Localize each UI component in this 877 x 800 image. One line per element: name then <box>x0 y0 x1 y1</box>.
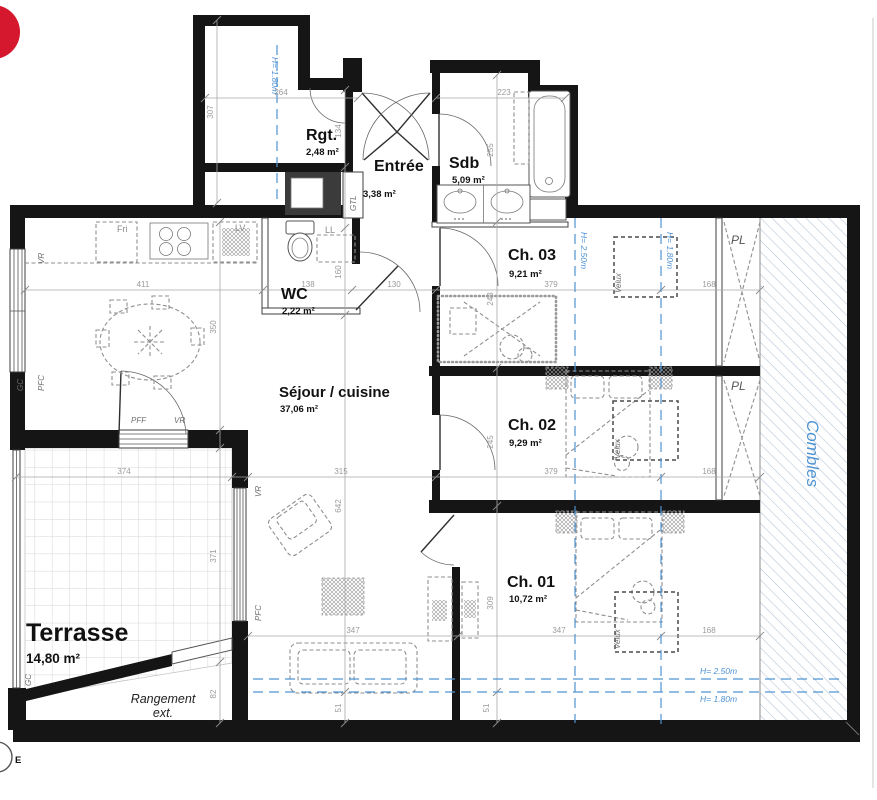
nightstand <box>546 367 568 389</box>
dim-243: 243 <box>486 292 495 306</box>
kitchen-counter <box>25 222 258 263</box>
dim-411: 411 <box>137 280 150 289</box>
gc-label-2: GC <box>24 674 33 686</box>
room-area-ch03: 9,21 m² <box>509 269 542 280</box>
dim-379-ch03: 379 <box>544 280 558 289</box>
dim-371: 371 <box>209 549 218 563</box>
door-ch01 <box>421 515 454 565</box>
pl-closet-braces <box>724 222 760 496</box>
dim-379-ch02: 379 <box>544 467 558 476</box>
sofa <box>290 643 417 693</box>
room-label-ch01: Ch. 01 <box>507 574 555 591</box>
double-sink <box>437 185 530 223</box>
room-label-entree: Entrée <box>374 158 424 175</box>
window-kitchen-left <box>10 249 25 372</box>
dim-168-ch02: 168 <box>702 467 716 476</box>
dim-130: 130 <box>387 280 401 289</box>
dim-138: 138 <box>301 280 315 289</box>
rangement-label-2: ext. <box>153 706 173 720</box>
room-label-rgt: Rgt. <box>306 127 337 144</box>
dim-309: 309 <box>486 596 495 610</box>
nightstand <box>663 511 684 533</box>
velux-label-ch02: Velux <box>613 438 622 459</box>
red-corner-badge <box>0 5 20 59</box>
room-area-sejour: 37,06 m² <box>280 404 318 415</box>
height-label-h250: H= 2.50m <box>700 666 737 676</box>
window-sejour-terrace <box>234 488 246 621</box>
room-label-sdb: Sdb <box>449 155 479 172</box>
pff-label: PFF <box>131 416 147 425</box>
dim-350: 350 <box>209 320 218 334</box>
door-ch03 <box>440 228 498 286</box>
velux-label-ch03: Velux <box>614 272 623 293</box>
nightstand <box>556 511 577 533</box>
room-area-terrasse: 14,80 m² <box>26 651 81 666</box>
floor-plan-svg: E <box>0 0 877 800</box>
dishwasher-label: LV <box>235 223 245 233</box>
dining-table <box>96 296 204 389</box>
armchair <box>266 492 334 558</box>
velux-ch02 <box>613 401 678 460</box>
dim-264: 264 <box>274 88 288 97</box>
dim-168-ch01: 168 <box>702 626 716 635</box>
dim-245: 245 <box>486 435 495 449</box>
dim-223: 223 <box>497 88 511 97</box>
compass-circle <box>0 742 12 772</box>
vr-label-3: VR <box>174 416 185 425</box>
dim-134: 134 <box>334 124 343 138</box>
rangement-label-1: Rangement <box>131 692 196 706</box>
dim-307: 307 <box>206 105 215 119</box>
room-label-ch02: Ch. 02 <box>508 417 556 434</box>
door-rgt <box>310 88 345 123</box>
room-area-ch01: 10,72 m² <box>509 594 547 605</box>
height-label-v180: H= 1.80m <box>665 232 675 269</box>
dim-168-ch03: 168 <box>702 280 716 289</box>
toilet <box>286 221 314 261</box>
height-label-v250: H= 2.50m <box>579 232 589 269</box>
dim-82: 82 <box>209 689 218 698</box>
combles-label: Combles <box>803 420 822 488</box>
room-area-rgt: 2,48 m² <box>306 147 339 158</box>
floor-plan: E <box>0 0 877 800</box>
vr-label-2: VR <box>254 486 263 497</box>
pl-label-2: PL <box>731 379 746 393</box>
dim-51-ch01: 51 <box>482 703 491 712</box>
dim-315: 315 <box>334 467 348 476</box>
bed-ch02 <box>566 371 650 477</box>
room-label-terrasse: Terrasse <box>26 619 128 647</box>
room-area-sdb: 5,09 m² <box>452 175 485 186</box>
plant <box>322 578 364 615</box>
gc-label-1: GC <box>16 379 25 391</box>
room-label-ch03: Ch. 03 <box>508 247 556 264</box>
washer-ll <box>317 235 355 262</box>
dim-255: 255 <box>486 143 495 157</box>
fridge-label: Fri <box>117 224 128 234</box>
dim-347-sejour: 347 <box>346 626 360 635</box>
terrace-railing <box>13 450 20 688</box>
dim-642: 642 <box>334 499 343 513</box>
gtl-label: GTL <box>349 195 358 211</box>
washer-label: LL <box>325 225 335 235</box>
height-label-h180: H= 1.80m <box>700 694 737 704</box>
room-area-wc: 2,22 m² <box>282 306 315 317</box>
room-area-entree: 3,38 m² <box>363 189 396 200</box>
dim-51-sejour: 51 <box>334 703 343 712</box>
dim-160: 160 <box>334 265 343 279</box>
velux-label-ch01: Velux <box>613 628 622 649</box>
room-area-ch02: 9,29 m² <box>509 438 542 449</box>
dim-374: 374 <box>117 467 131 476</box>
compass-east-label: E <box>15 755 21 766</box>
room-label-sejour: Séjour / cuisine <box>279 384 390 401</box>
pfc-label-1: PFC <box>37 375 46 391</box>
bed-ch01 <box>576 512 662 622</box>
vr-label-1: VR <box>37 253 46 264</box>
pfc-label-2: PFC <box>254 605 263 621</box>
velux-windows <box>613 237 678 652</box>
entrance-double-door <box>362 93 430 160</box>
dim-347-ch01: 347 <box>552 626 566 635</box>
pl-label-1: PL <box>731 233 746 247</box>
